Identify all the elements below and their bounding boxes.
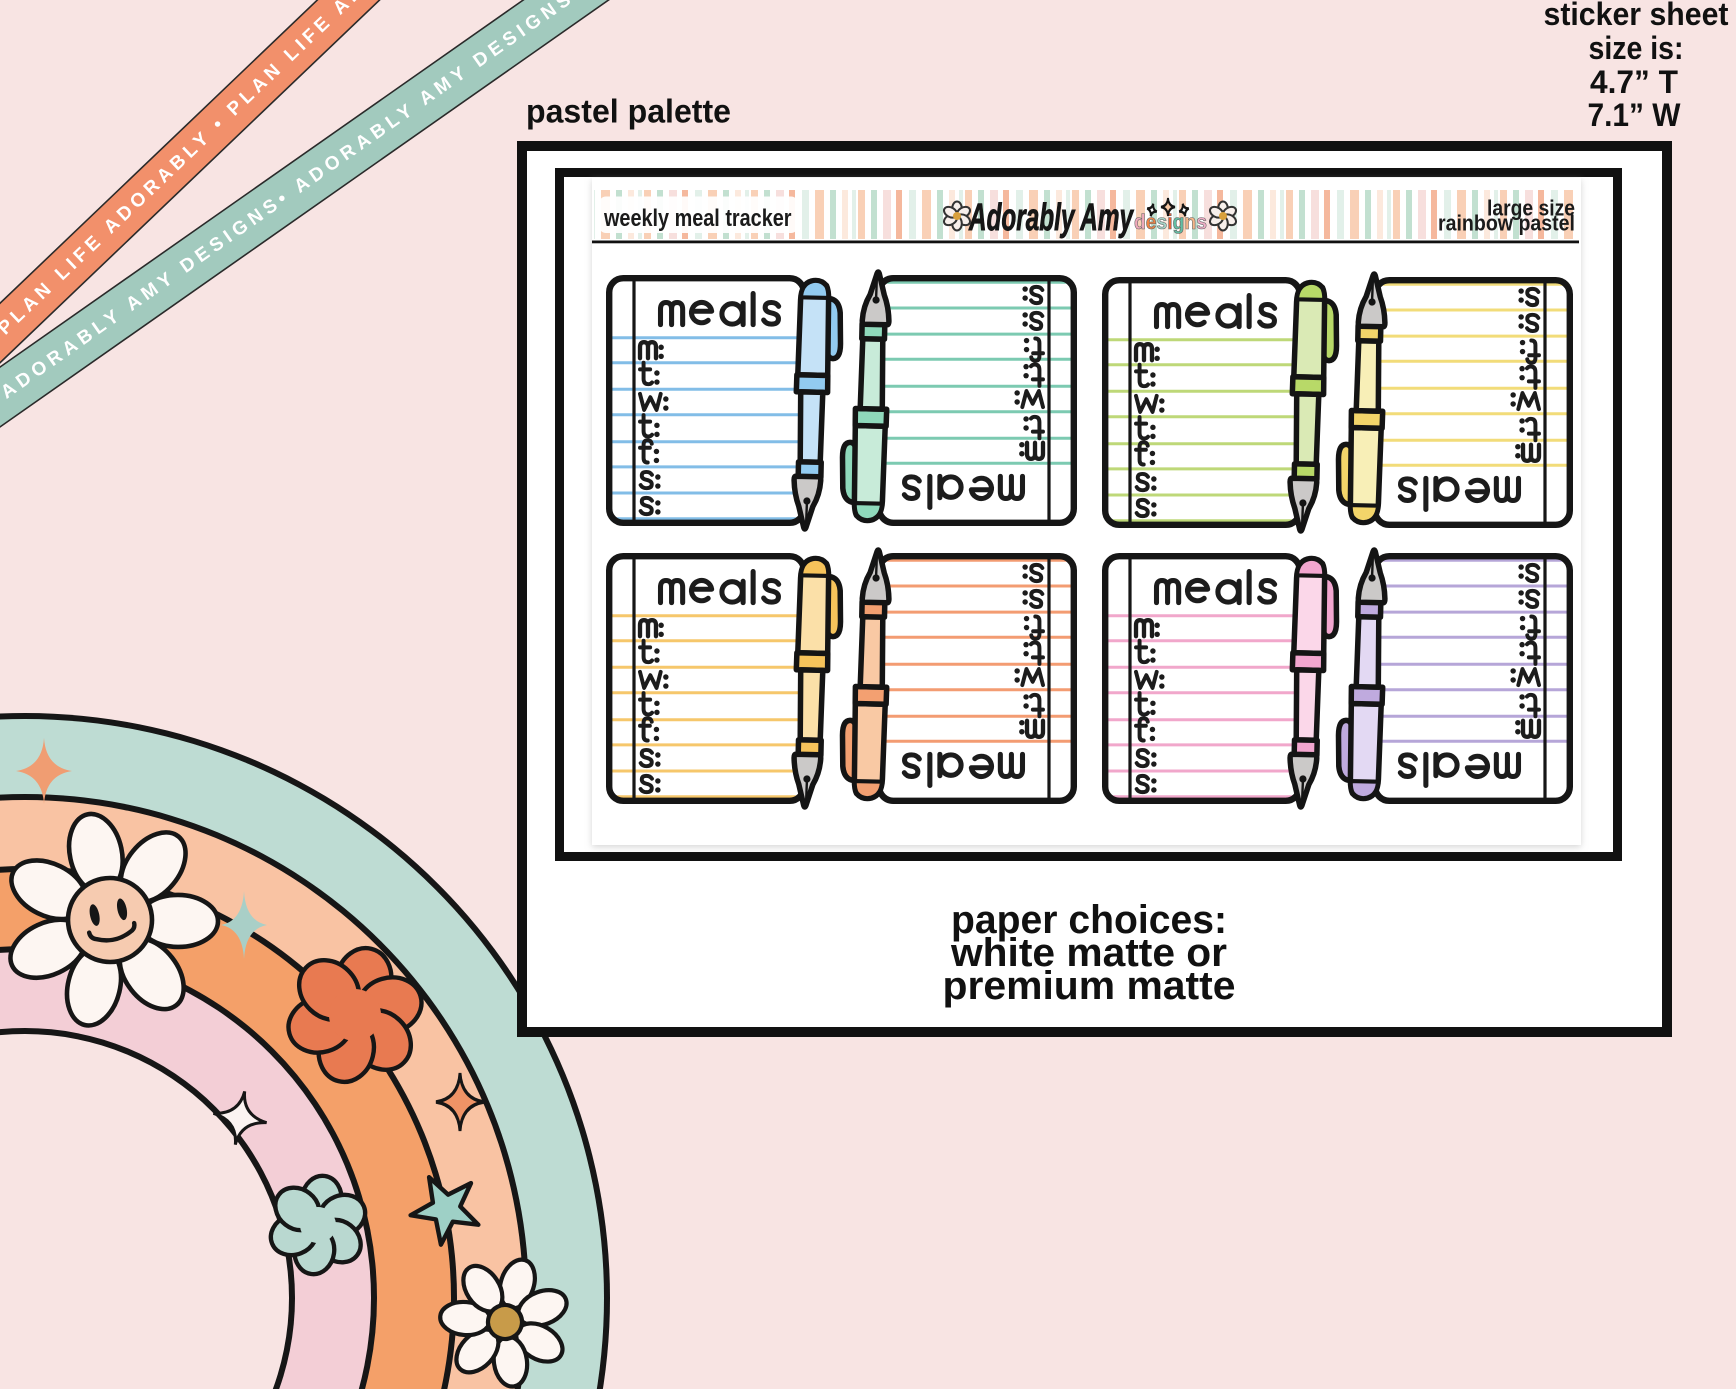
- svg-text:designs: designs: [1134, 211, 1207, 234]
- svg-text:rainbow pastel: rainbow pastel: [1438, 211, 1575, 236]
- svg-text:pastel palette: pastel palette: [526, 93, 731, 130]
- svg-text:size is:: size is:: [1589, 30, 1684, 66]
- svg-text:Adorably Amy: Adorably Amy: [968, 197, 1134, 239]
- svg-text:sticker sheet: sticker sheet: [1544, 0, 1729, 32]
- svg-text:weekly meal tracker: weekly meal tracker: [603, 205, 791, 232]
- svg-text:4.7” T: 4.7” T: [1590, 64, 1678, 100]
- svg-text:premium matte: premium matte: [943, 964, 1236, 1008]
- svg-text:7.1” W: 7.1” W: [1588, 97, 1682, 133]
